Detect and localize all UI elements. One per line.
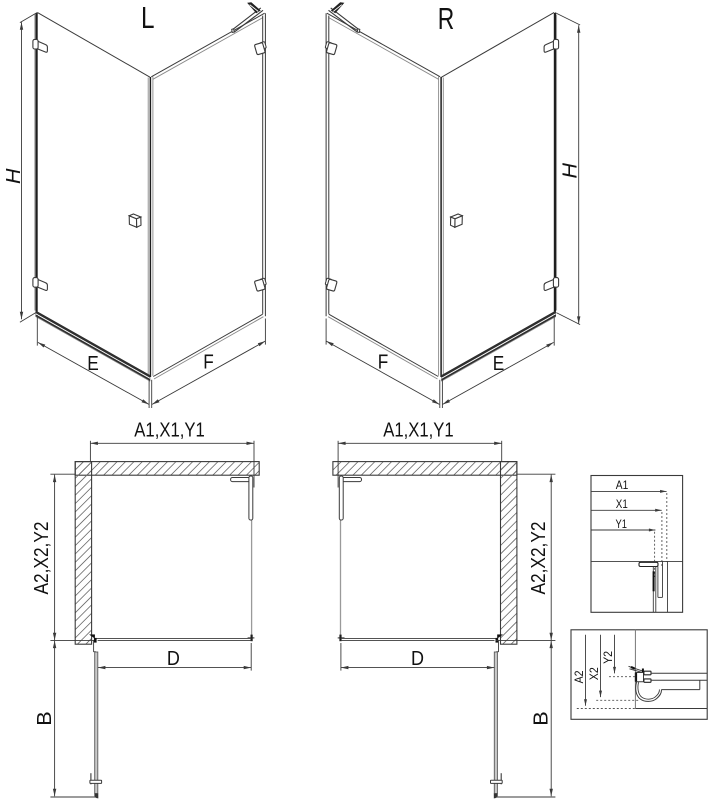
svg-text:Y1: Y1 (616, 519, 628, 531)
svg-text:A2,X2,Y2: A2,X2,Y2 (528, 522, 550, 595)
svg-text:R: R (438, 1, 455, 36)
svg-text:L: L (141, 0, 155, 35)
svg-text:H: H (3, 168, 25, 184)
svg-text:Y2: Y2 (603, 651, 615, 664)
svg-text:B: B (34, 711, 56, 726)
svg-text:F: F (203, 352, 214, 374)
svg-text:X1: X1 (616, 499, 628, 511)
svg-text:A1,X1,Y1: A1,X1,Y1 (383, 419, 454, 441)
svg-text:X2: X2 (589, 667, 601, 680)
svg-text:A2,X2,Y2: A2,X2,Y2 (31, 522, 53, 595)
svg-text:D: D (167, 648, 180, 670)
svg-text:F: F (378, 352, 389, 374)
svg-text:D: D (411, 648, 424, 670)
svg-text:H: H (559, 162, 581, 178)
svg-text:A1,X1,Y1: A1,X1,Y1 (134, 419, 205, 441)
svg-text:A1: A1 (616, 480, 629, 492)
svg-text:B: B (530, 711, 552, 726)
svg-text:E: E (87, 353, 99, 375)
svg-text:E: E (493, 353, 505, 375)
svg-text:A2: A2 (574, 670, 586, 683)
